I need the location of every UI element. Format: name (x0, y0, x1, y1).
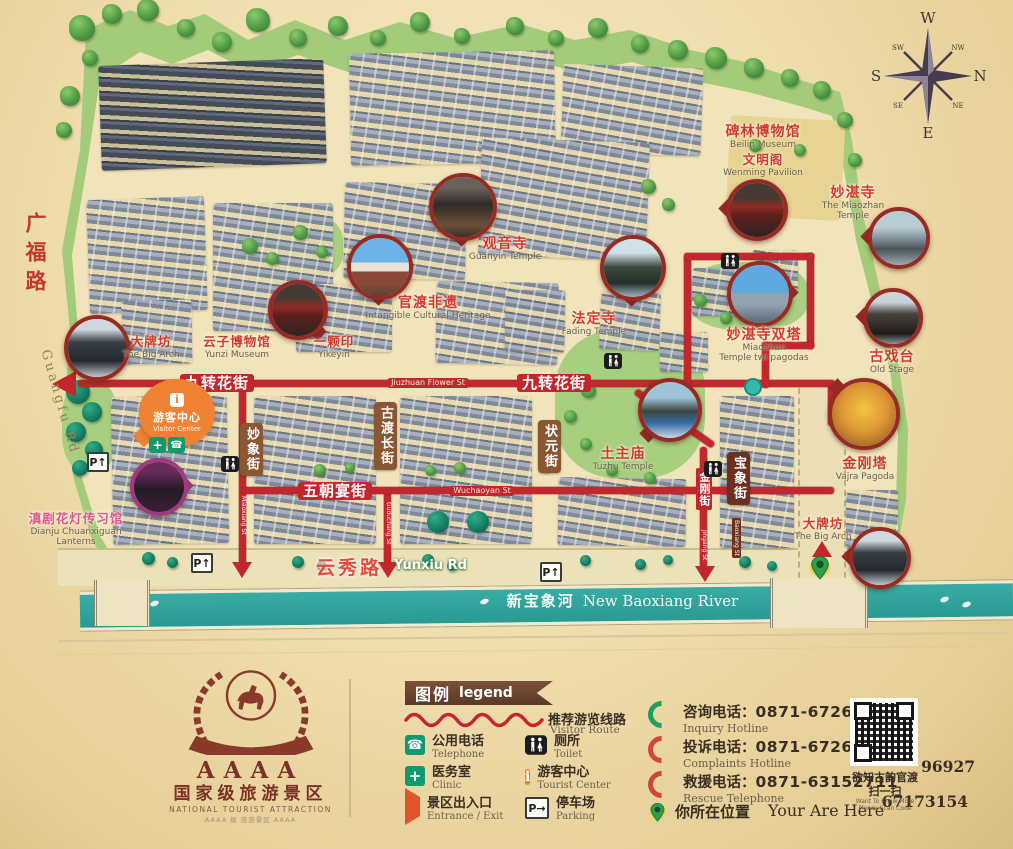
bush (292, 556, 304, 568)
vajra-pagoda-name-en: Vajra Pagoda (836, 472, 895, 482)
tree (60, 86, 80, 106)
tree (289, 29, 307, 47)
toilet-icon (221, 456, 239, 476)
photo-big-arch-west (64, 315, 130, 381)
tree (662, 198, 675, 211)
toilet-icon (704, 461, 722, 481)
tree (410, 12, 430, 32)
yunxiu-road-label-en: Yunxiu Rd (394, 558, 467, 573)
compass-s: S (871, 67, 881, 85)
bush (767, 561, 777, 571)
photo-tuzhu-temple-image-fill (642, 382, 698, 438)
street-sign: 宝象街 (727, 452, 750, 505)
parking-icon: P↑ (540, 562, 562, 582)
logo-grade: AAAA (148, 759, 353, 783)
tourist-legend-icon: i (525, 766, 530, 787)
bush (72, 460, 88, 476)
legend-title-cn: 图例 (415, 681, 451, 705)
qr-code (852, 700, 916, 764)
logo-subtitle: AAAA 级 旅游景区 AAAA (148, 815, 353, 825)
telephone-icon: ☎ (168, 437, 185, 453)
entrance-legend-icon (405, 797, 420, 816)
tree (328, 16, 348, 36)
you-are-here-pin (808, 553, 832, 587)
phone-red-icon (642, 765, 680, 803)
tree (314, 464, 326, 476)
info-icon: i (170, 393, 184, 407)
qr-finder (896, 702, 914, 720)
poi-label-guanyin-temple: 观音寺Guanyin Temple (469, 236, 541, 262)
legend-item-entrance-exit: 景区出入口Entrance / Exit (405, 797, 503, 822)
bush (142, 552, 155, 565)
photo-dianju-lanterns (130, 458, 188, 516)
poi-label-miaozhan-temple: 妙湛寺The MiaozhanTemple (822, 185, 885, 221)
phone-legend-icon: ☎ (405, 735, 425, 755)
route-street-label: 九转花街 (517, 374, 591, 392)
tree (345, 463, 355, 473)
qr-caption-en: Want To Know MorePlease Scan Code (840, 798, 930, 812)
tree (580, 438, 592, 450)
route-street-label: Wuchaoyan St (449, 486, 514, 496)
poi-label-yikeyin: 一颗印Yikeyin (314, 334, 355, 360)
dianju-lanterns-name-cn: 滇剧花灯传习馆 (29, 511, 124, 527)
photo-fading-temple-image-fill (604, 239, 662, 297)
tree (668, 40, 688, 60)
photo-dianju-lanterns-image (130, 458, 188, 516)
photo-vajra-pagoda-image (828, 378, 900, 450)
photo-yikeyin-image (268, 280, 328, 340)
photo-heritage (347, 234, 413, 300)
poi-dot (744, 378, 762, 396)
photo-old-stage (863, 288, 923, 348)
tree (69, 15, 95, 41)
compass-ne: NE (952, 102, 963, 110)
laurel-horse-emblem (176, 659, 326, 755)
route-vertical-pinyin: Miaoxiang St (240, 496, 247, 535)
miaozhan-temple-name-en2: Temple (822, 211, 885, 221)
tree (837, 112, 853, 128)
photo-miaozhan-gate (726, 179, 788, 241)
miaozhan-temple-name-en: The Miaozhan (822, 201, 885, 211)
photo-tuzhu-temple (638, 378, 702, 442)
tree (425, 465, 436, 476)
clinic-legend-icon: + (405, 766, 425, 786)
photo-tuzhu-temple-image (638, 378, 702, 442)
beilin-museum-name-cn: 碑林博物馆 (726, 124, 801, 140)
tree (316, 246, 328, 258)
phone-green-icon (642, 695, 680, 733)
route-wavy-line (404, 711, 546, 729)
tree (641, 179, 656, 194)
photo-big-arch-southeast-image (849, 527, 911, 589)
river-label: 新宝象河New Baoxiang River (500, 590, 745, 611)
tree (137, 0, 159, 21)
fading-temple-name-cn: 法定寺 (562, 311, 626, 327)
tree (848, 153, 862, 167)
bridge-west (94, 580, 150, 626)
tree (781, 69, 799, 87)
photo-vajra-pagoda (828, 378, 900, 450)
parking-legend-icon: P→ (525, 797, 549, 819)
sidewalk-line (58, 632, 1010, 642)
legend-title-en: legend (459, 685, 513, 701)
tree (644, 472, 656, 484)
tree (212, 32, 232, 52)
dianju-lanterns-name-en2: Lanterns (29, 537, 124, 547)
compass-rose: W E S N SW NW SE NE (870, 10, 986, 140)
tree (82, 50, 98, 66)
building-block (98, 58, 327, 171)
wenming-pavilion-name-en: Wenming Pavilion (723, 168, 803, 178)
tree (102, 4, 122, 24)
visitor-center-label-cn: 游客中心 (153, 409, 201, 425)
tree (454, 462, 466, 474)
phone-red-icon (642, 730, 680, 768)
footer-panel: AAAA 国家级旅游景区 NATIONAL TOURIST ATTRACTION… (0, 655, 1013, 849)
route-vertical-pinyin: Guduchang St (385, 502, 392, 545)
fading-temple-name-en: Fading Temple (562, 327, 626, 337)
bush (467, 511, 489, 533)
photo-heritage-image-fill (351, 238, 409, 296)
poi-label-guandu-heritage: 官渡非遗Intangible Cultural Heritage (365, 295, 490, 321)
poi-label-beilin-museum: 碑林博物馆Beilin Museum (726, 124, 801, 150)
photo-guanyin-temple (429, 173, 497, 241)
tree (694, 294, 707, 307)
legend-item-parking: P→停车场Parking (525, 797, 595, 822)
big-arch-southeast-name-en: The Big Arch (794, 532, 851, 542)
tree (177, 19, 195, 37)
poi-label-yunzi-museum: 云子博物馆Yunzi Museum (203, 334, 271, 360)
tree (564, 410, 577, 423)
photo-big-arch-southeast (849, 527, 911, 589)
photo-big-arch-west-image (64, 315, 130, 381)
guandu-heritage-name-cn: 官渡非遗 (365, 295, 490, 311)
tree (588, 18, 608, 38)
visitor-route-segment (684, 256, 691, 387)
yikeyin-name-en: Yikeyin (314, 350, 355, 360)
building-block (86, 196, 208, 314)
entrance-arrow-down (232, 562, 252, 578)
toilet-icon (604, 353, 622, 373)
yunzi-museum-name-en: Yunzi Museum (203, 350, 271, 360)
guandu-heritage-name-en: Intangible Cultural Heritage (365, 311, 490, 321)
beilin-museum-name-en: Beilin Museum (726, 140, 801, 150)
miaozhan-temple-name-cn: 妙湛寺 (822, 185, 885, 201)
bush (167, 557, 178, 568)
twin-pagodas-name-en: Miaozhan (719, 343, 809, 353)
photo-fading-temple-image (600, 235, 666, 301)
street-sign: 状元街 (538, 420, 561, 473)
poi-label-vajra-pagoda: 金刚塔Vajra Pagoda (836, 456, 895, 482)
building-block (504, 289, 565, 352)
legend-item-tourist-center: i游客中心Tourist Center (525, 766, 611, 791)
photo-guanyin-temple-image-fill (433, 177, 493, 237)
street-sign: 古渡长街 (374, 402, 397, 470)
route-vertical-pinyin: Jingang St (701, 530, 708, 560)
tourist-map-page: { "colors":{"route_red":"#c1272d","river… (0, 0, 1013, 849)
tree (548, 30, 564, 46)
big-arch-west-name-en: The Big Arch (122, 350, 179, 360)
tree (56, 122, 72, 138)
qr-finder (854, 702, 872, 720)
toilet-icon (721, 253, 739, 273)
yunxiu-road-label-cn: 云秀路 (316, 553, 382, 580)
photo-guanyin-temple-image (429, 173, 497, 241)
photo-old-stage-image (863, 288, 923, 348)
twin-pagodas-name-cn: 妙湛寺双塔 (719, 327, 809, 343)
attraction-logo: AAAA 国家级旅游景区 NATIONAL TOURIST ATTRACTION… (148, 659, 353, 825)
photo-miaozhan-gate-image-fill (730, 183, 784, 237)
tree (506, 17, 524, 35)
bush (635, 559, 646, 570)
guanyin-temple-name-cn: 观音寺 (469, 236, 541, 252)
visitor-route-segment (239, 384, 246, 568)
yunzi-museum-name-cn: 云子博物馆 (203, 334, 271, 350)
big-arch-west-name-cn: 大牌坊 (122, 334, 179, 350)
old-stage-name-cn: 古戏台 (870, 349, 915, 365)
poi-label-twin-pagodas: 妙湛寺双塔MiaozhanTemple twi pagodas (719, 327, 809, 363)
visitor-center-label-en: Visitor Center (153, 425, 201, 433)
tree (246, 8, 270, 32)
clinic-icon: + (149, 437, 166, 453)
bush (663, 555, 673, 565)
poi-label-wenming-pavilion: 文明阁Wenming Pavilion (723, 152, 803, 178)
tree (242, 238, 258, 254)
bush (82, 402, 102, 422)
old-stage-name-en: Old Stage (870, 365, 915, 375)
bush (739, 556, 751, 568)
tree (744, 58, 764, 78)
photo-miaozhan-gate-image (726, 179, 788, 241)
photo-heritage-image (347, 234, 413, 300)
tuzhu-temple-name-en: Tuzhu Temple (593, 462, 654, 472)
entrance-arrow-down (695, 566, 715, 582)
photo-twin-pagodas-image-fill (731, 265, 789, 323)
tree (370, 30, 386, 46)
photo-yikeyin-image-fill (272, 284, 324, 336)
tree (454, 28, 470, 44)
twin-pagodas-name-en2: Temple twi pagodas (719, 353, 809, 363)
guangfu-road-label-cn: 广福路 (20, 212, 50, 299)
route-street-label: Jiuzhuan Flower St (387, 378, 469, 388)
street-sign: 妙象街 (240, 423, 263, 476)
poi-label-big-arch-southeast: 大牌坊The Big Arch (794, 516, 851, 542)
tuzhu-temple-name-cn: 土主庙 (593, 446, 654, 462)
compass-n: N (973, 67, 986, 85)
qr-caption-cn2: 扫一扫 (840, 783, 930, 799)
photo-dianju-lanterns-image-fill (134, 462, 184, 512)
photo-big-arch-west-image-fill (68, 319, 126, 377)
legend-item-toilet: 厕所Toilet (525, 735, 582, 760)
tree (705, 47, 727, 69)
dianju-lanterns-name-en: Dianju Chuanxiguan (29, 527, 124, 537)
compass-e: E (923, 124, 934, 140)
poi-label-old-stage: 古戏台Old Stage (870, 349, 915, 375)
compass-nw: NW (951, 44, 965, 52)
legend-title-banner: 图例 legend (405, 681, 553, 705)
route-street-label: 五朝宴街 (298, 482, 372, 500)
building-block (400, 396, 532, 544)
bush (580, 555, 591, 566)
poi-label-tuzhu-temple: 土主庙Tuzhu Temple (593, 446, 654, 472)
photo-fading-temple (600, 235, 666, 301)
photo-yikeyin (268, 280, 328, 340)
wenming-pavilion-name-cn: 文明阁 (723, 152, 803, 168)
toilet-legend-icon (525, 735, 547, 759)
visitor-route-segment (684, 253, 814, 260)
photo-big-arch-southeast-image-fill (853, 531, 907, 585)
poi-label-big-arch-west: 大牌坊The Big Arch (122, 334, 179, 360)
tree (293, 225, 308, 240)
parking-icon: P↑ (191, 553, 213, 573)
parking-icon: P↑ (87, 452, 109, 472)
big-arch-southeast-name-cn: 大牌坊 (794, 516, 851, 532)
poi-label-fading-temple: 法定寺Fading Temple (562, 311, 626, 337)
compass-sw: SW (892, 44, 905, 52)
sidewalk-line-2 (58, 646, 1010, 655)
photo-old-stage-image-fill (867, 292, 919, 344)
bush (427, 511, 449, 533)
qr-finder (854, 744, 872, 762)
vajra-pagoda-name-cn: 金刚塔 (836, 456, 895, 472)
logo-title-en: NATIONAL TOURIST ATTRACTION (148, 805, 353, 815)
river-label-en: New Baoxiang River (583, 592, 738, 610)
compass-w: W (920, 10, 936, 27)
legend-item-telephone: ☎公用电话Telephone (405, 735, 484, 760)
photo-vajra-pagoda-image-fill (832, 382, 896, 446)
street-sign-pinyin: Baoxiang St (732, 518, 741, 558)
tree (266, 252, 279, 265)
poi-label-dianju-lanterns: 滇剧花灯传习馆Dianju ChuanxiguanLanterns (29, 511, 124, 547)
you-are-here-pin-icon (648, 801, 667, 828)
guanyin-temple-name-en: Guanyin Temple (469, 252, 541, 262)
yikeyin-name-cn: 一颗印 (314, 334, 355, 350)
compass-se: SE (893, 102, 903, 110)
tree (631, 35, 649, 53)
river-label-cn: 新宝象河 (507, 592, 575, 610)
logo-title-cn: 国家级旅游景区 (148, 783, 353, 805)
tree (813, 81, 831, 99)
you-are-here-cn: 你所在位置 (675, 801, 750, 822)
